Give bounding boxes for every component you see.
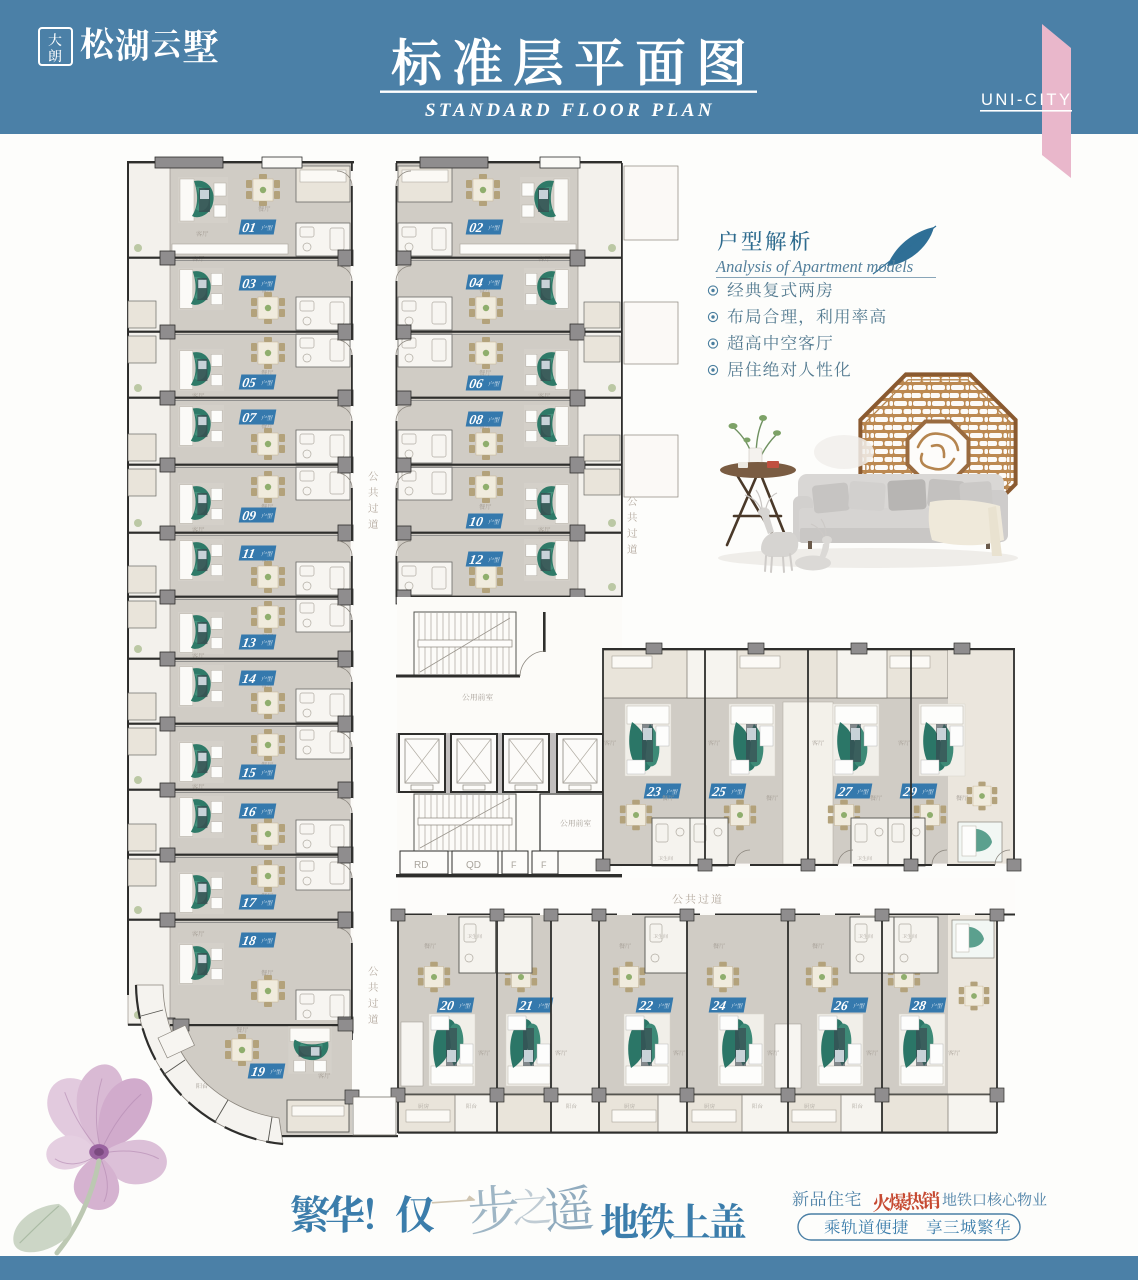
svg-text:06: 06 xyxy=(468,376,484,391)
svg-text:02: 02 xyxy=(468,220,484,235)
svg-text:14: 14 xyxy=(241,671,257,686)
svg-text:12: 12 xyxy=(468,552,484,567)
svg-text:24: 24 xyxy=(710,998,727,1013)
svg-text:13: 13 xyxy=(241,635,257,650)
svg-text:03: 03 xyxy=(241,276,257,291)
svg-text:F: F xyxy=(541,860,547,870)
svg-text:QD: QD xyxy=(466,860,481,871)
svg-text:26: 26 xyxy=(832,998,849,1013)
svg-text:25: 25 xyxy=(710,784,727,799)
svg-text:01: 01 xyxy=(241,220,257,235)
svg-text:11: 11 xyxy=(241,546,256,561)
svg-text:23: 23 xyxy=(645,784,662,799)
svg-text:28: 28 xyxy=(910,998,927,1013)
svg-text:20: 20 xyxy=(438,998,455,1013)
svg-text:29: 29 xyxy=(901,784,918,799)
svg-text:STANDARD FLOOR PLAN: STANDARD FLOOR PLAN xyxy=(425,100,715,121)
svg-text:05: 05 xyxy=(241,375,257,390)
svg-text:15: 15 xyxy=(241,765,257,780)
svg-text:18: 18 xyxy=(241,933,257,948)
svg-text:UNI-CITY: UNI-CITY xyxy=(981,91,1073,109)
svg-text:Analysis of Apartment models: Analysis of Apartment models xyxy=(715,257,913,276)
svg-text:10: 10 xyxy=(468,514,484,529)
svg-text:21: 21 xyxy=(517,998,534,1013)
svg-text:09: 09 xyxy=(241,508,257,523)
svg-text:19: 19 xyxy=(250,1064,266,1079)
svg-text:RD: RD xyxy=(414,860,428,871)
svg-text:F: F xyxy=(511,860,517,870)
svg-text:16: 16 xyxy=(241,804,257,819)
svg-text:04: 04 xyxy=(468,275,484,290)
svg-text:08: 08 xyxy=(468,412,484,427)
svg-text:22: 22 xyxy=(637,998,654,1013)
